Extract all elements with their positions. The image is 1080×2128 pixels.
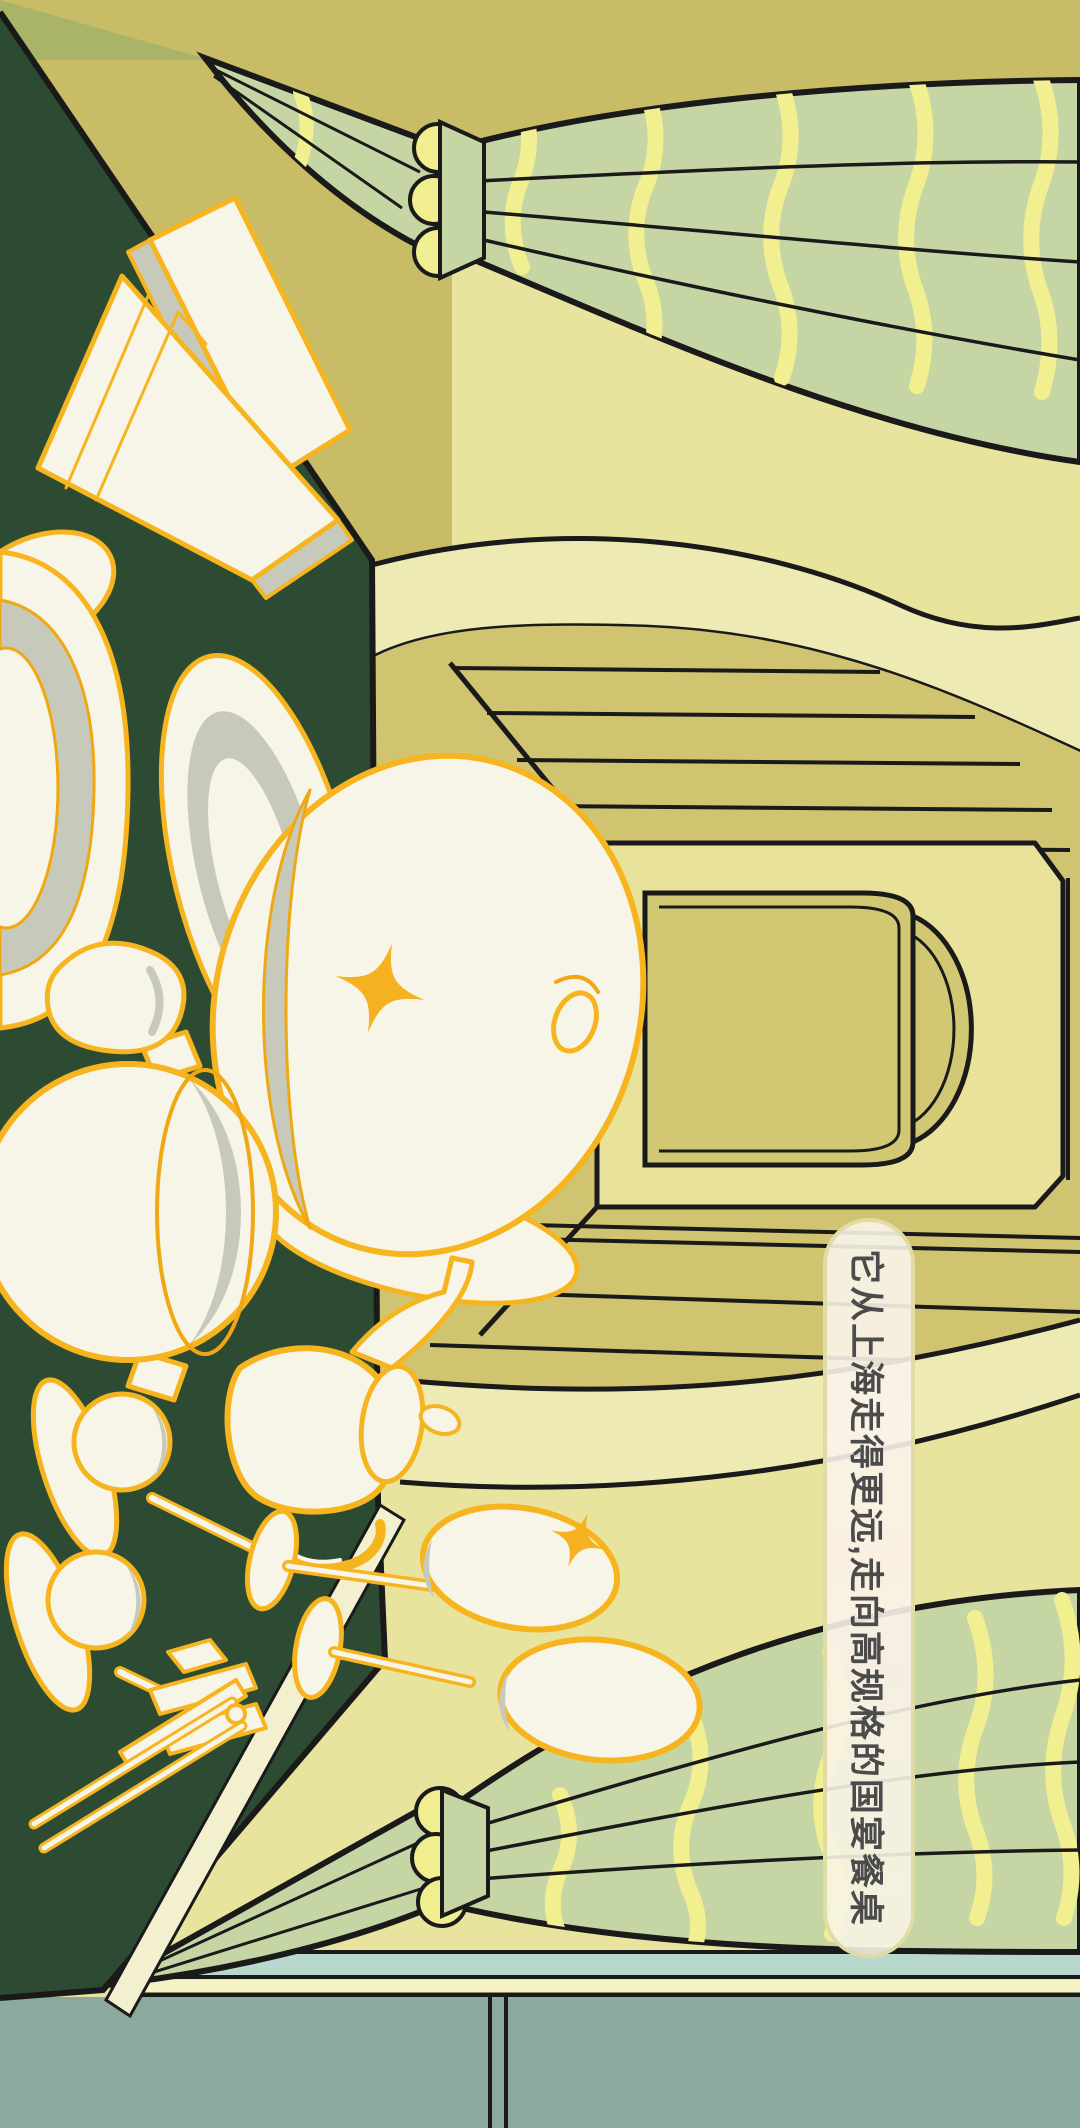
banquet-hall-scene: [0, 0, 1080, 2128]
curtain-tie-top: [410, 122, 484, 278]
caption-bubble: 它从上海走得更远,走向高规格的国宴餐桌: [823, 1218, 915, 1958]
caption-text: 它从上海走得更远,走向高规格的国宴餐桌: [827, 1218, 911, 1958]
illustration-canvas: 它从上海走得更远,走向高规格的国宴餐桌: [0, 0, 1080, 2128]
slate-floor: [0, 1997, 1080, 2128]
sauce-boat: [47, 943, 184, 1052]
door-face: [645, 893, 913, 1165]
doorway: [597, 843, 1068, 1207]
